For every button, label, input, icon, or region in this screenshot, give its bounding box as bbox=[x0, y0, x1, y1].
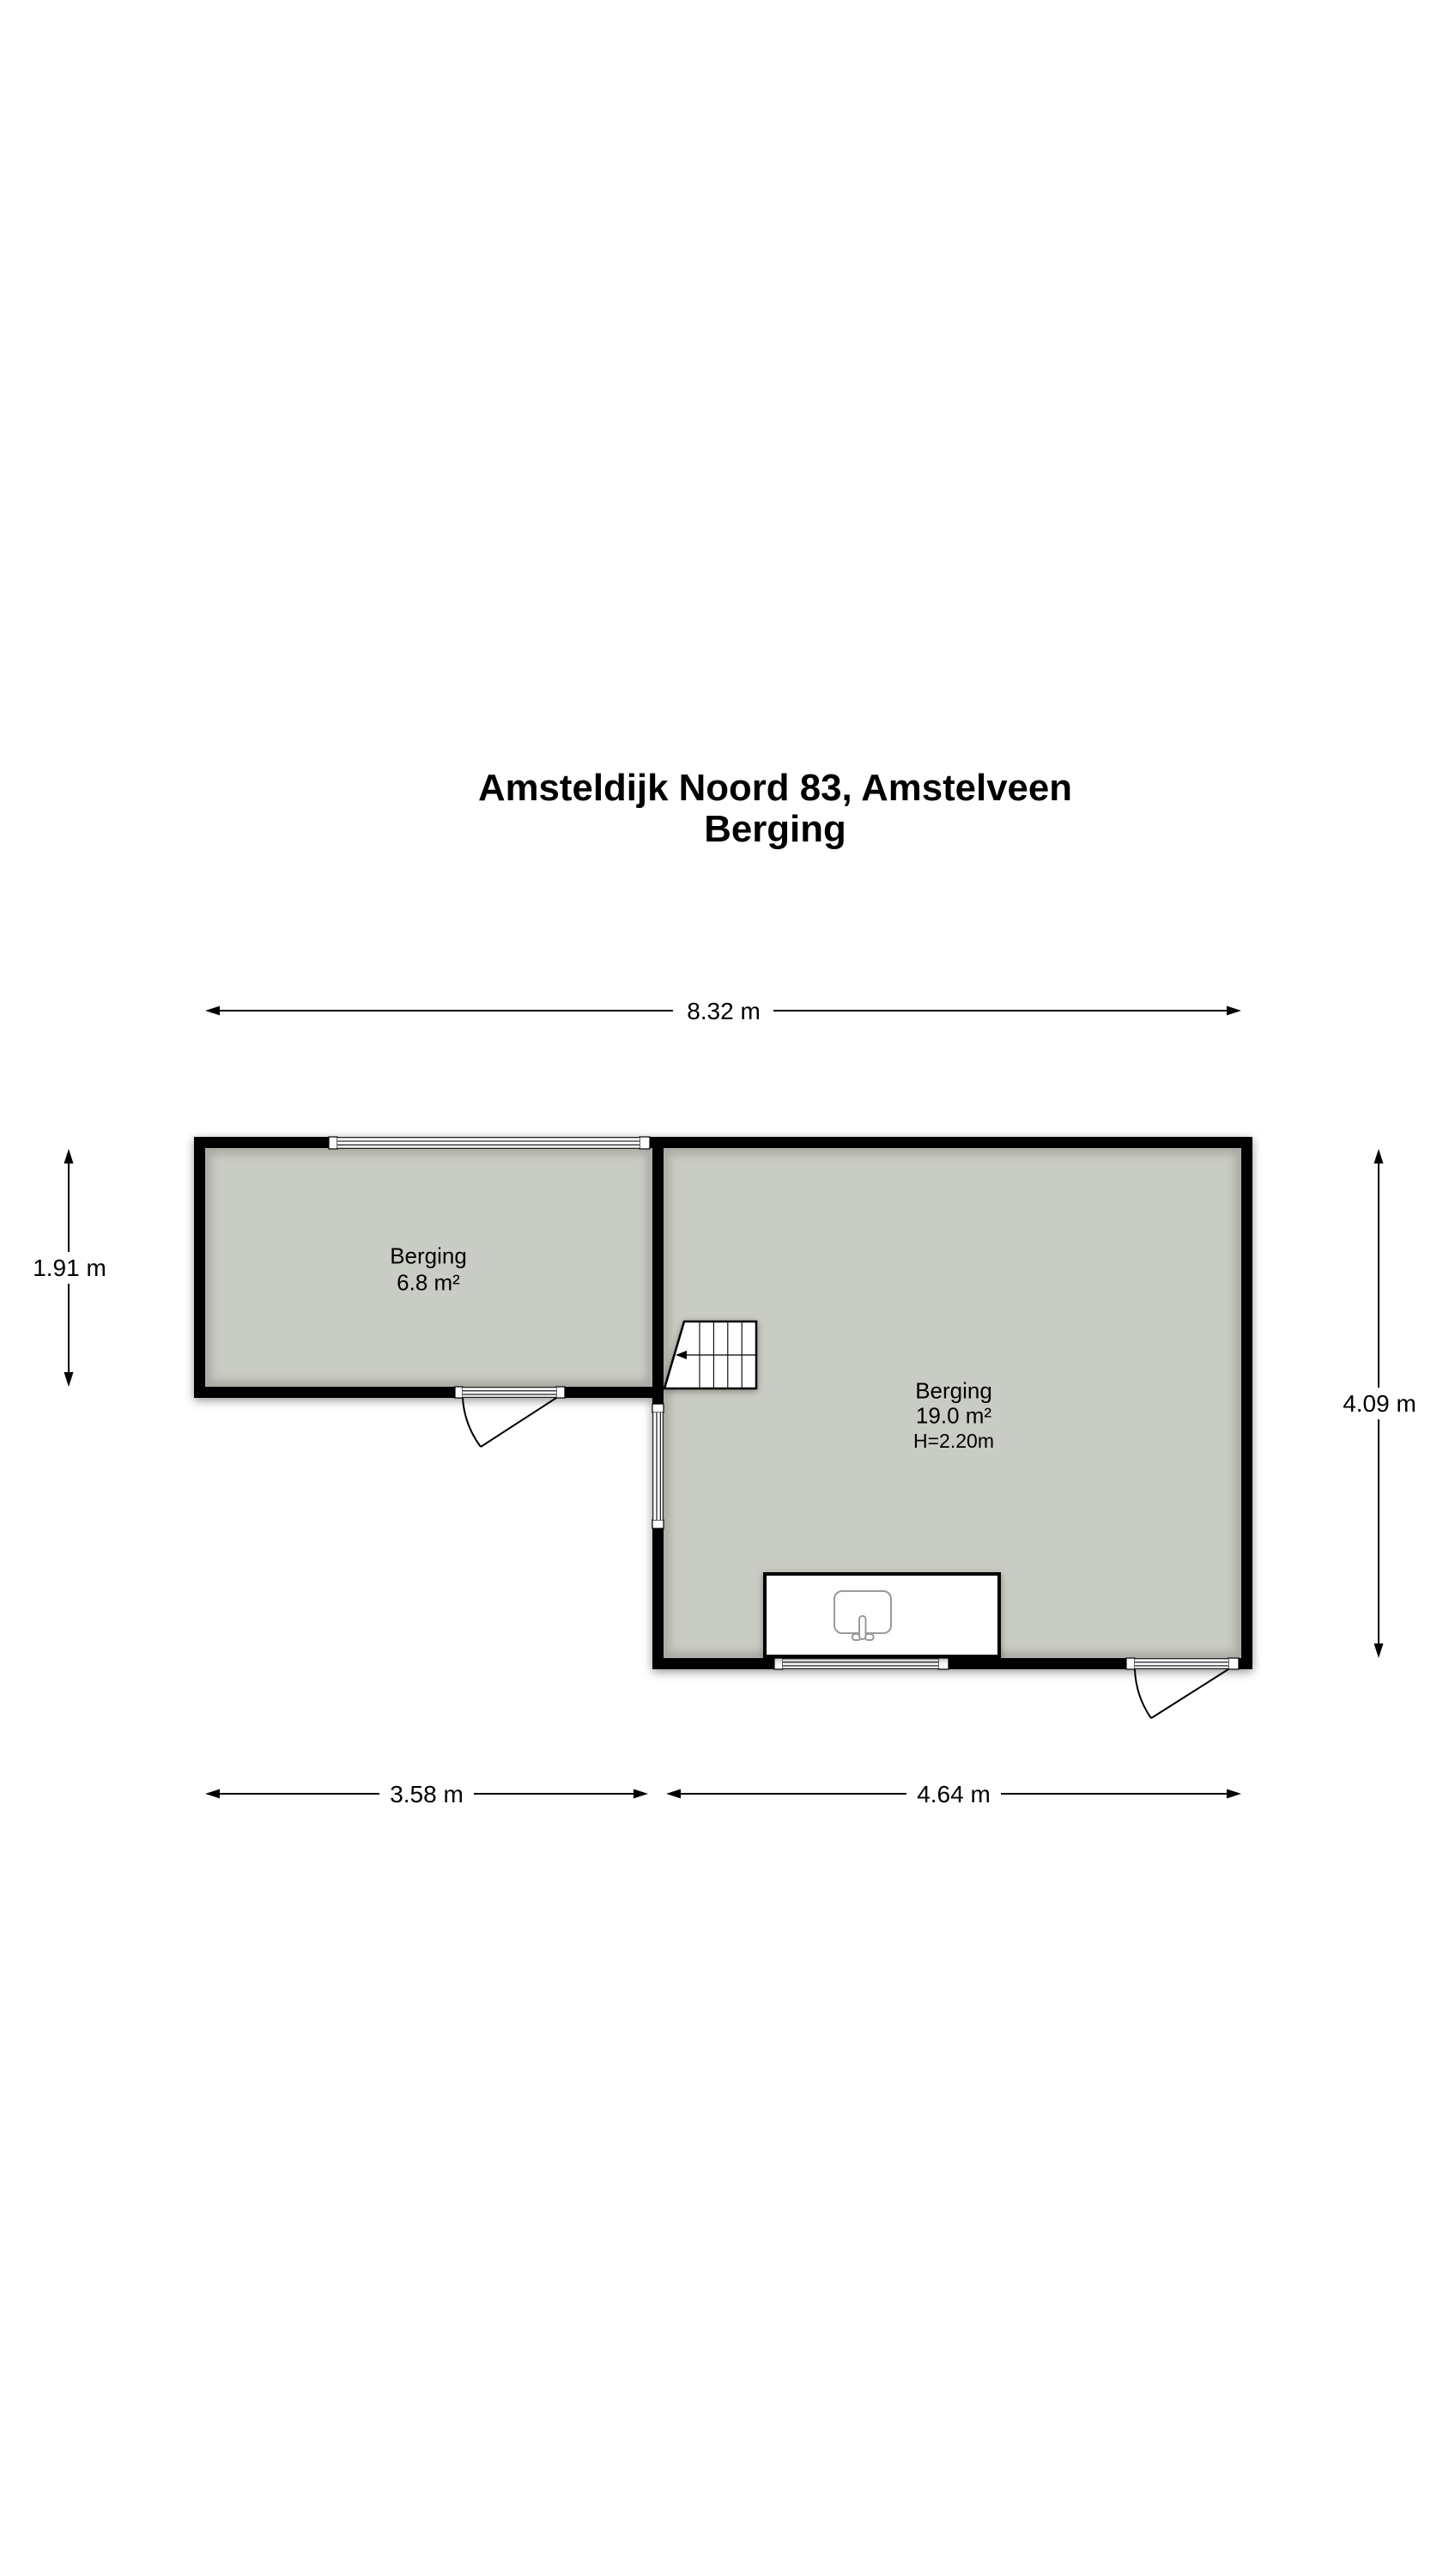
svg-text:H=2.20m: H=2.20m bbox=[913, 1430, 994, 1452]
svg-text:Berging: Berging bbox=[390, 1243, 467, 1269]
svg-text:Amsteldijk Noord 83, Amstelvee: Amsteldijk Noord 83, Amstelveen bbox=[478, 767, 1072, 809]
svg-text:4.64 m: 4.64 m bbox=[917, 1781, 991, 1807]
svg-text:Berging: Berging bbox=[704, 808, 846, 850]
svg-text:4.09 m: 4.09 m bbox=[1343, 1390, 1416, 1417]
svg-text:8.32 m: 8.32 m bbox=[687, 998, 761, 1024]
svg-text:3.58 m: 3.58 m bbox=[390, 1781, 464, 1807]
svg-text:19.0 m²: 19.0 m² bbox=[916, 1403, 991, 1429]
svg-text:6.8 m²: 6.8 m² bbox=[397, 1269, 460, 1295]
svg-text:1.91 m: 1.91 m bbox=[33, 1255, 106, 1281]
svg-text:Berging: Berging bbox=[915, 1378, 992, 1404]
